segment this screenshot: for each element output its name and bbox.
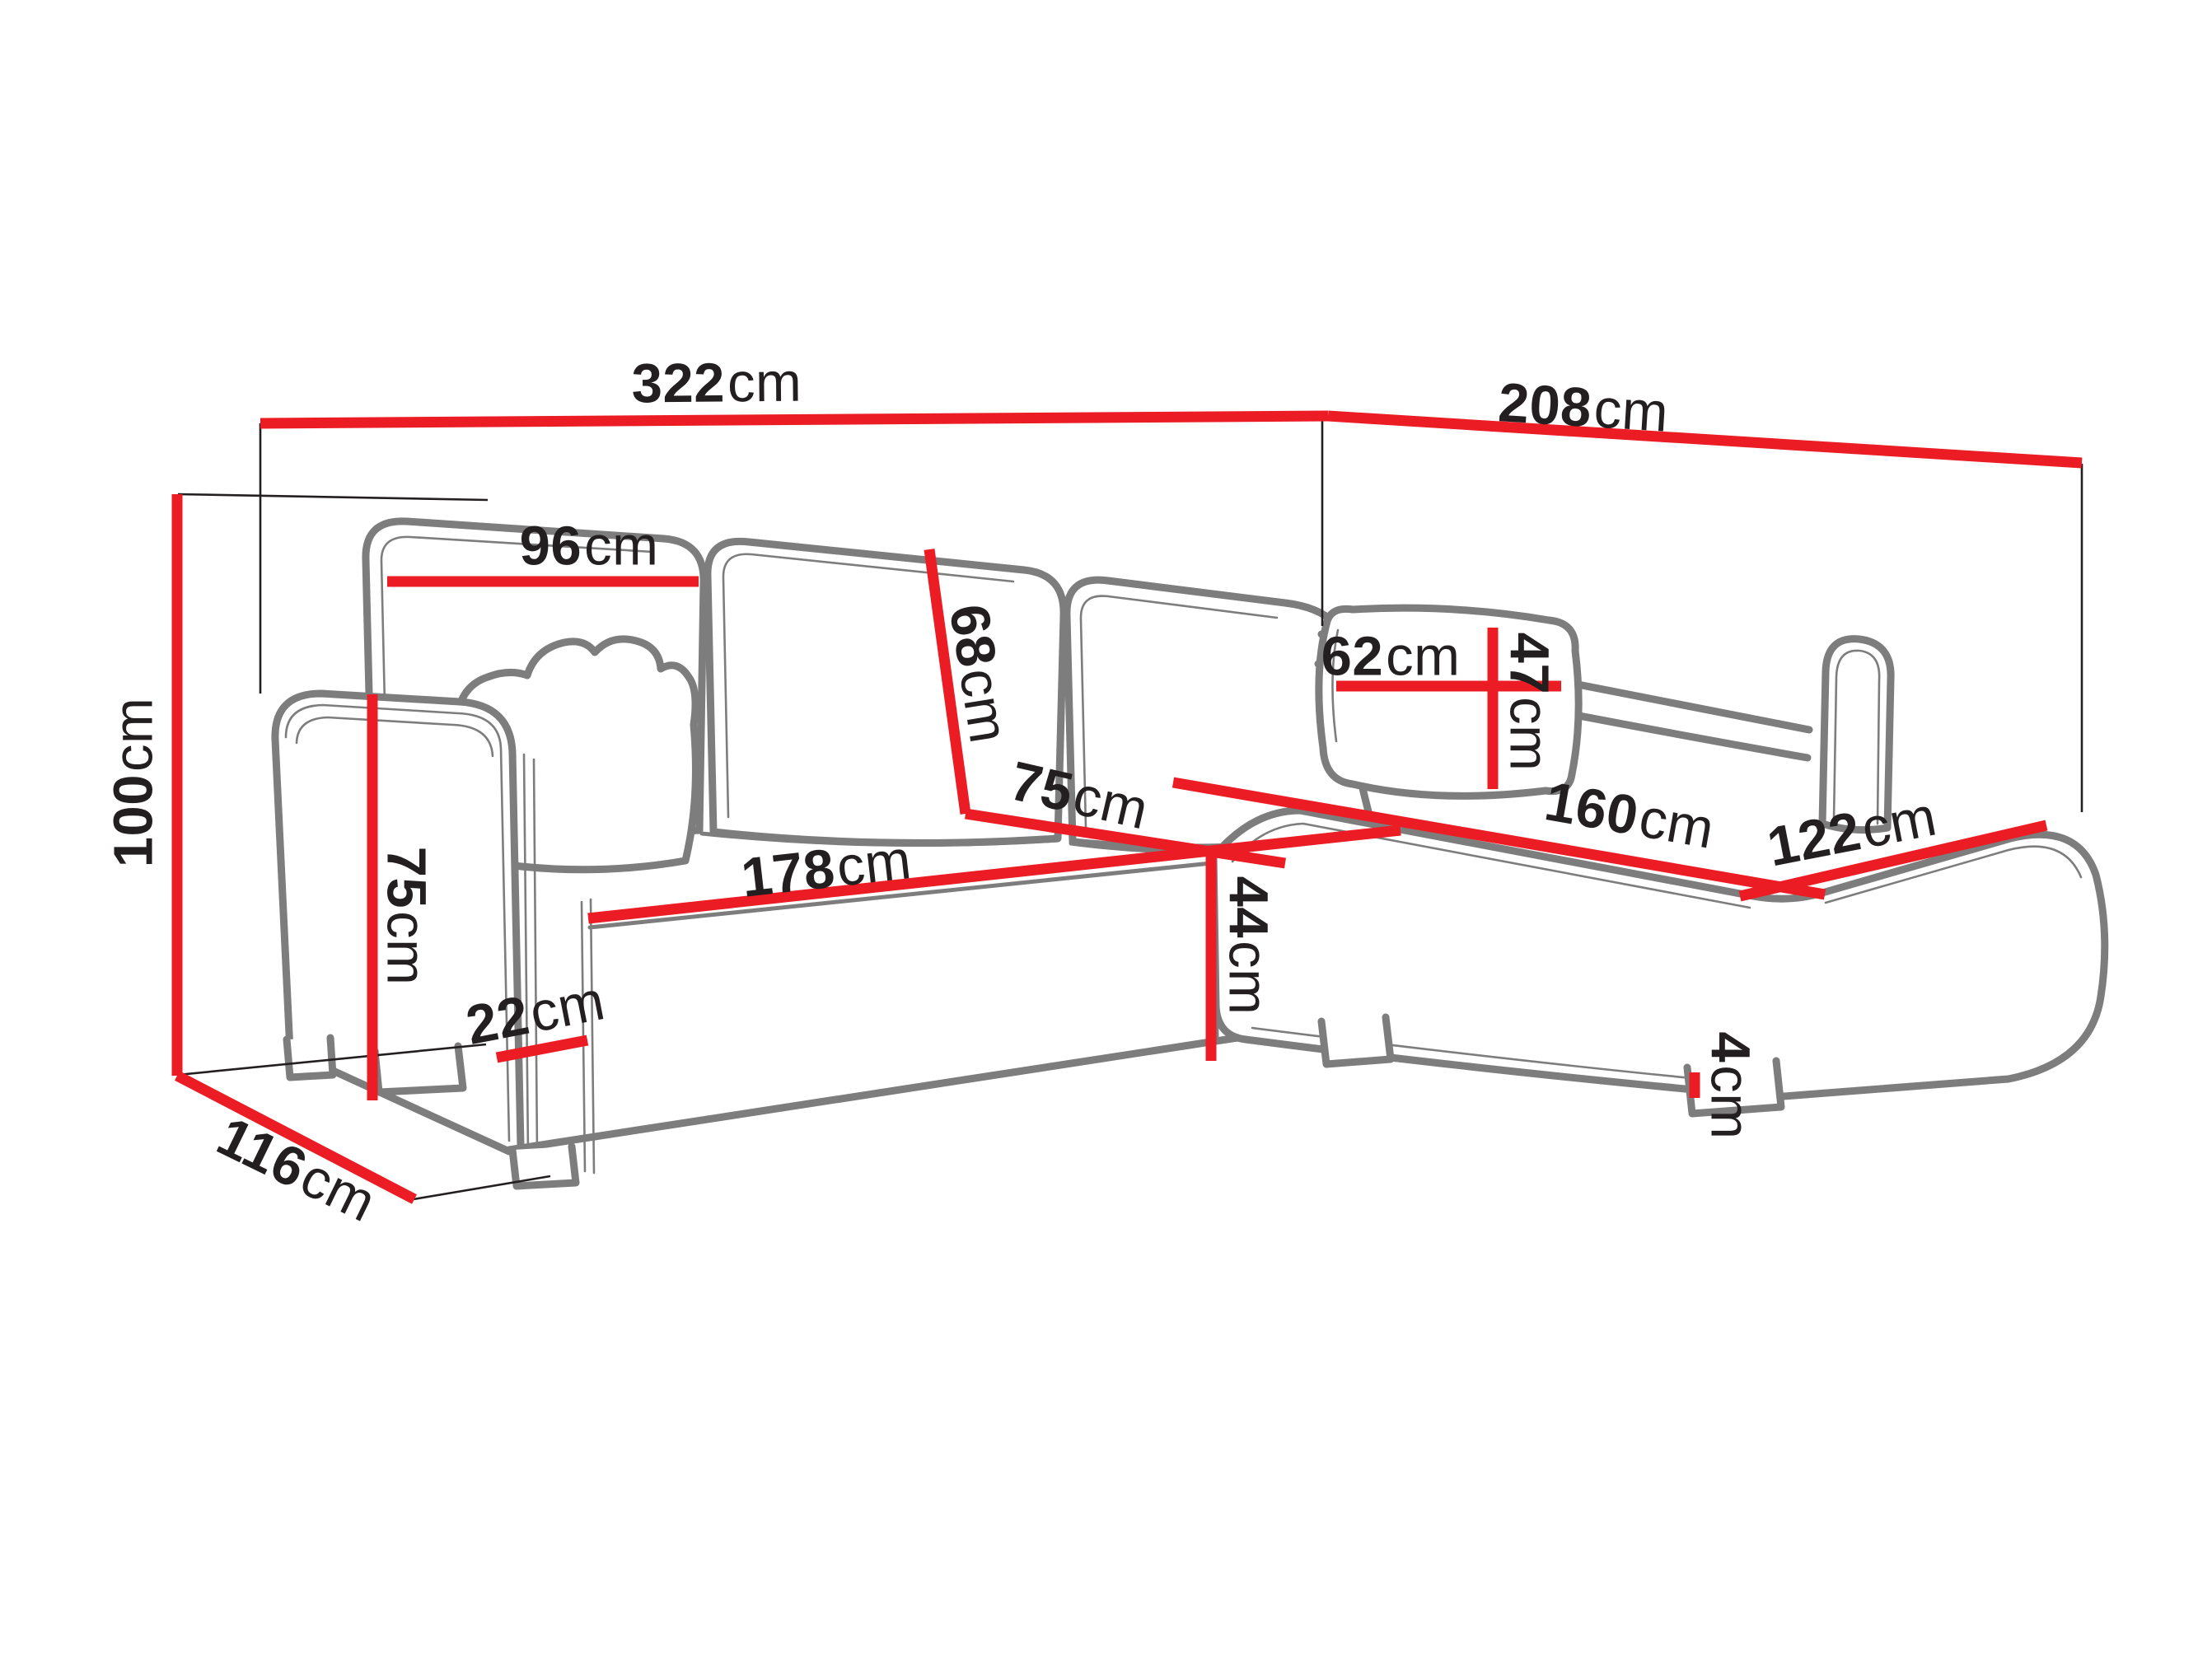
dimension-value: 322 (631, 352, 725, 414)
dimension-line-overall-width (260, 416, 1328, 423)
dimension-unit: cm (1700, 1065, 1761, 1139)
sofa-dimension-diagram: 322cm 208cm 100cm 116cm 96cm 68cm 75cm 1… (0, 0, 2212, 1658)
dimension-value: 22 (461, 984, 534, 1057)
dimension-label-accent-pillow-height: 47cm (1502, 633, 1557, 772)
dimension-unit: cm (584, 516, 658, 577)
dimension-value: 96 (520, 516, 582, 577)
dimension-label-accent-pillow-width: 62cm (1321, 629, 1461, 684)
seat-bottom-edge (509, 1038, 1237, 1150)
dimension-unit: cm (1499, 697, 1560, 771)
dimension-unit: cm (1386, 626, 1460, 688)
dimension-unit: cm (103, 698, 165, 772)
dimension-unit: cm (834, 829, 914, 899)
dimension-label-leg-height: 4cm (1703, 1031, 1758, 1139)
dimension-label-seat-height: 44cm (1221, 876, 1276, 1016)
dimension-unit: cm (1592, 377, 1671, 443)
dimension-value: 208 (1497, 371, 1594, 439)
dimension-value: 68 (938, 600, 1008, 671)
dimension-label-overall-depth: 208cm (1497, 375, 1670, 440)
sofa-leg (375, 1046, 463, 1092)
dimension-unit: cm (947, 664, 1020, 747)
sofa-leg (1321, 1017, 1391, 1064)
dimension-label-armrest-height: 75cm (379, 847, 434, 986)
dimension-unit: cm (1634, 787, 1719, 861)
dimension-value: 4 (1700, 1031, 1761, 1063)
dimension-unit: cm (727, 352, 802, 414)
dimension-value: 44 (1218, 876, 1279, 939)
dimension-label-overall-height: 100cm (106, 698, 161, 868)
dimension-label-back-cushion-width: 96cm (520, 519, 659, 574)
dimension-unit: cm (1218, 941, 1279, 1015)
dimension-value: 47 (1499, 633, 1560, 695)
dimension-value: 75 (376, 847, 437, 909)
dimension-value: 178 (738, 838, 838, 909)
dimension-value: 100 (103, 774, 165, 867)
sofa-leg (287, 1038, 333, 1077)
dimension-line-overall-depth (1328, 416, 2082, 463)
dimension-label-overall-width: 322cm (631, 355, 802, 412)
dimension-unit: cm (376, 911, 437, 985)
dimension-value: 62 (1321, 626, 1384, 688)
